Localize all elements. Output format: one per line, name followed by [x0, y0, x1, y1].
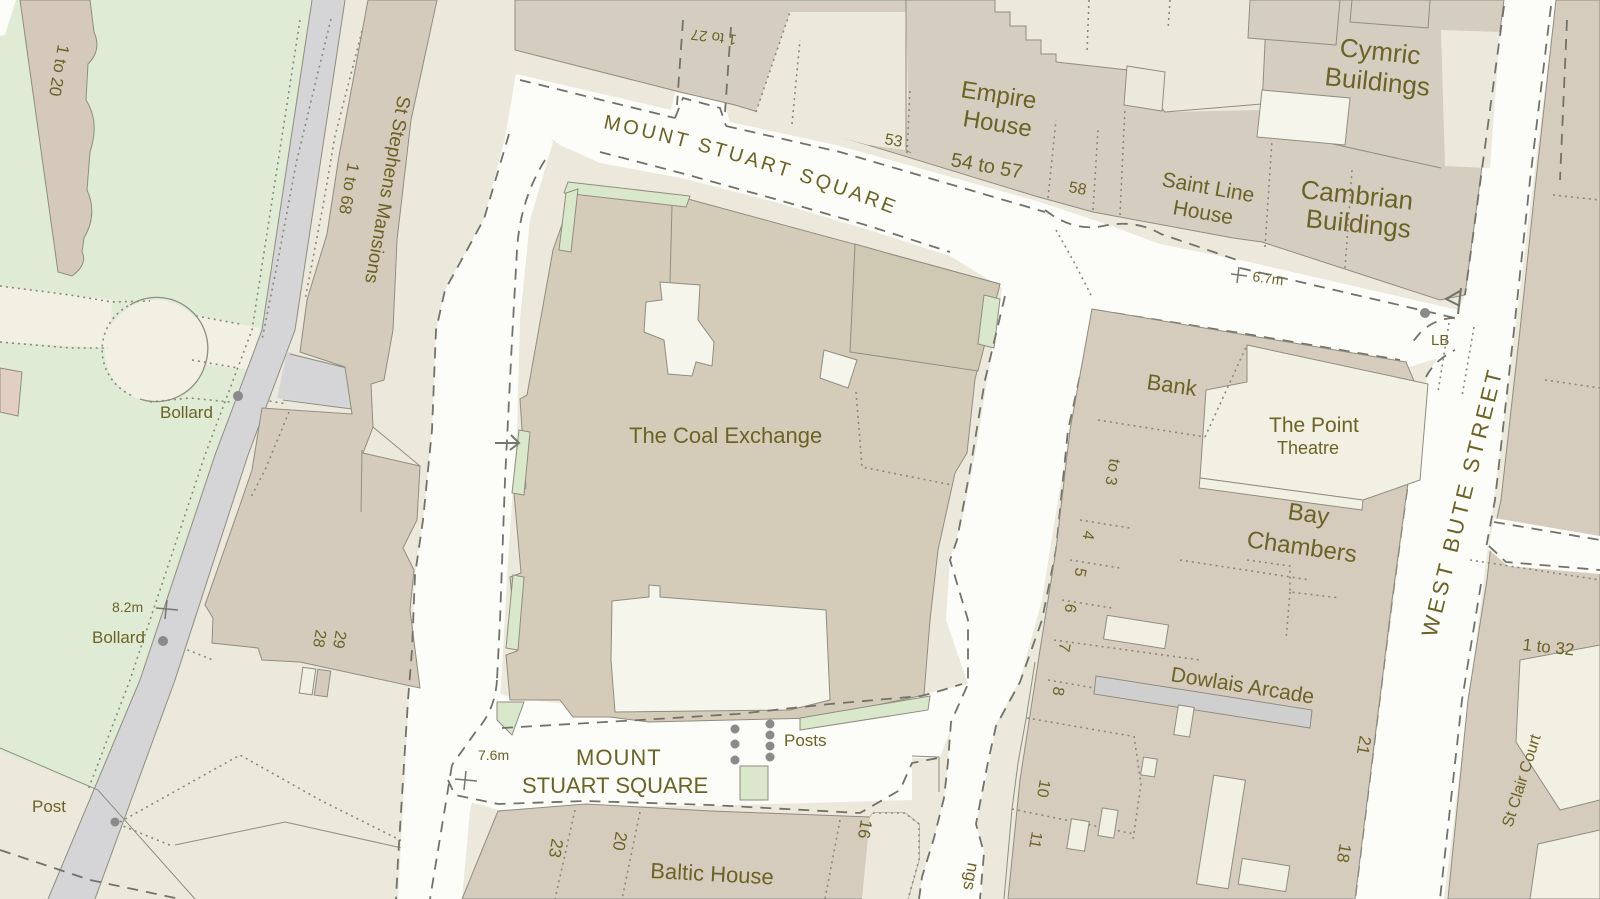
svg-text:LB: LB	[1431, 332, 1449, 349]
svg-text:18: 18	[1333, 842, 1355, 864]
svg-text:53: 53	[883, 131, 904, 151]
svg-text:Post: Post	[32, 797, 66, 816]
svg-text:Bay: Bay	[1286, 498, 1331, 530]
svg-text:Theatre: Theatre	[1277, 438, 1339, 458]
svg-text:20: 20	[609, 830, 631, 852]
svg-text:16: 16	[854, 818, 876, 840]
svg-text:The Point: The Point	[1269, 414, 1359, 437]
svg-text:58: 58	[1067, 179, 1088, 199]
svg-text:10: 10	[1033, 778, 1053, 799]
svg-text:7.6m: 7.6m	[478, 747, 509, 763]
svg-text:Bollard: Bollard	[160, 403, 213, 422]
svg-text:STUART SQUARE: STUART SQUARE	[522, 773, 708, 798]
svg-text:29: 29	[329, 629, 349, 650]
svg-text:Bollard: Bollard	[92, 628, 145, 647]
svg-text:8.2m: 8.2m	[112, 599, 143, 615]
svg-text:11: 11	[1025, 830, 1045, 849]
svg-text:23: 23	[545, 837, 567, 859]
svg-text:Posts: Posts	[784, 731, 827, 750]
svg-text:21: 21	[1353, 734, 1375, 756]
svg-text:MOUNT: MOUNT	[576, 745, 662, 770]
svg-text:28: 28	[309, 628, 329, 649]
svg-text:The Coal Exchange: The Coal Exchange	[629, 423, 822, 448]
